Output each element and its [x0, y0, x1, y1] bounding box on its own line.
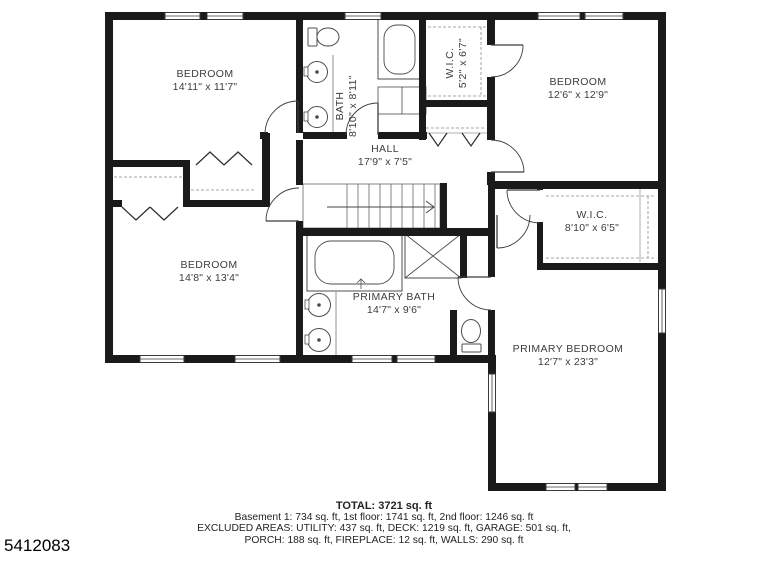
excluded-areas-2: PORCH: 188 sq. ft, FIREPLACE: 12 sq. ft,… [0, 535, 768, 546]
primary-sink-icon [305, 292, 336, 355]
floor-plan-page: BEDROOM 14'11" x 11'7" BATH 8'10" x 8'11… [0, 0, 768, 564]
floor-plan-drawing [0, 0, 768, 564]
bifold-closet-bottom-bedroom [122, 207, 178, 220]
bifold-closet-top-bedroom [196, 152, 252, 165]
door-wic-primary [507, 190, 540, 223]
excluded-areas-1: EXCLUDED AREAS: UTILITY: 437 sq. ft, DEC… [0, 523, 768, 534]
primary-toilet-icon [462, 320, 482, 353]
area-summary: TOTAL: 3721 sq. ft Basement 1: 734 sq. f… [0, 500, 768, 546]
door-bedroom-top-left [265, 101, 298, 133]
floor-areas: Basement 1: 734 sq. ft, 1st floor: 1741 … [0, 512, 768, 523]
door-bath [346, 103, 378, 135]
door-bedroom-top-right [491, 140, 524, 172]
total-area: TOTAL: 3721 sq. ft [0, 500, 768, 512]
staircase [303, 184, 440, 228]
door-primary-bath [458, 277, 491, 310]
window-icon [140, 13, 666, 491]
shower-icon [405, 234, 461, 278]
windows [140, 13, 666, 491]
door-wic-small [491, 45, 523, 77]
toilet-icon [308, 28, 339, 46]
fixtures [304, 19, 487, 355]
listing-id: 5412083 [4, 536, 70, 556]
primary-bathtub-icon [307, 234, 402, 291]
stairs-direction-arrow [327, 201, 434, 213]
door-bedroom-bottom-left [266, 188, 299, 221]
bifold-hall-closet [429, 133, 480, 146]
linen-closet [378, 87, 487, 133]
bathtub-icon [378, 19, 420, 79]
sink-icon [304, 55, 333, 134]
